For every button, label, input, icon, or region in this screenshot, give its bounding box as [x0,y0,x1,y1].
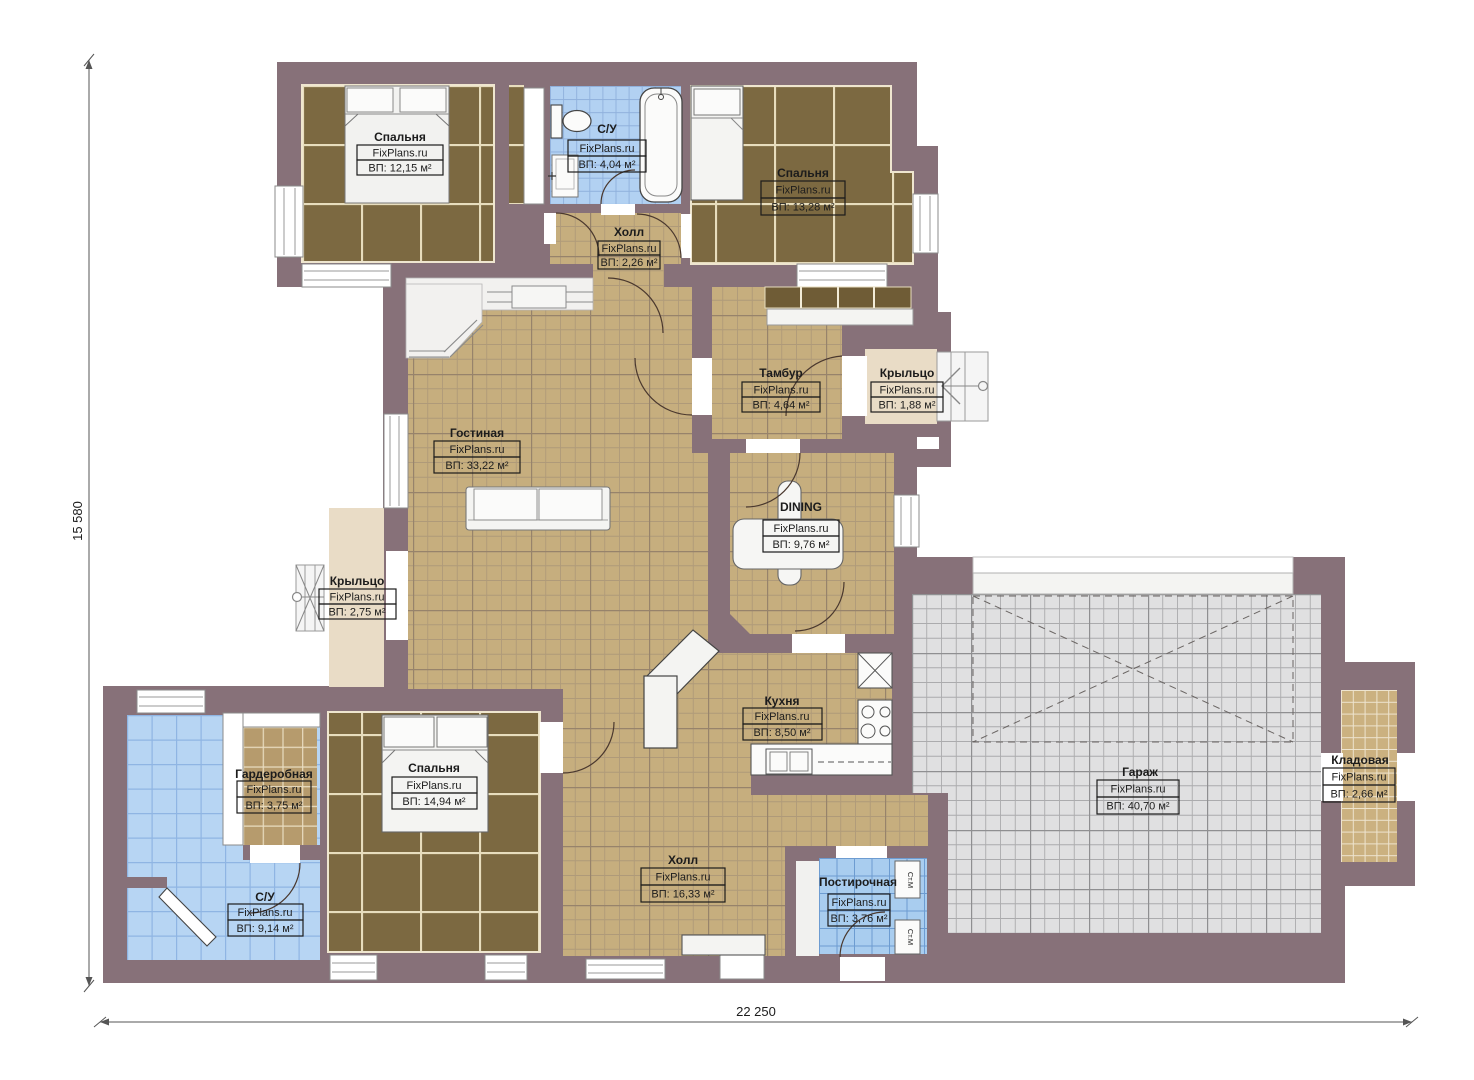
svg-text:FixPlans.ru: FixPlans.ru [831,897,886,909]
svg-text:FixPlans.ru: FixPlans.ru [237,907,292,919]
svg-text:Гостиная: Гостиная [450,426,504,440]
svg-text:ВП: 3,75 м²: ВП: 3,75 м² [245,800,302,812]
svg-text:ВП: 40,70 м²: ВП: 40,70 м² [1106,801,1170,813]
svg-text:FixPlans.ru: FixPlans.ru [601,243,656,255]
svg-text:ВП: 9,76 м²: ВП: 9,76 м² [772,539,829,551]
svg-text:Спальня: Спальня [374,130,426,144]
svg-text:Тамбур: Тамбур [759,366,803,380]
svg-text:ВП: 2,75 м²: ВП: 2,75 м² [328,607,385,619]
svg-text:FixPlans.ru: FixPlans.ru [329,592,384,604]
svg-text:Постирочная: Постирочная [819,875,897,889]
svg-text:ВП: 2,66 м²: ВП: 2,66 м² [1330,789,1387,801]
svg-text:ВП: 14,94 м²: ВП: 14,94 м² [402,796,466,808]
svg-text:Ст.М: Ст.М [906,929,915,945]
svg-text:DINING: DINING [780,500,822,514]
svg-text:FixPlans.ru: FixPlans.ru [655,872,710,884]
svg-text:FixPlans.ru: FixPlans.ru [753,385,808,397]
svg-text:ВП: 4,64 м²: ВП: 4,64 м² [752,400,809,412]
svg-text:Холл: Холл [614,225,644,239]
svg-text:FixPlans.ru: FixPlans.ru [406,780,461,792]
svg-text:Гардеробная: Гардеробная [235,767,313,781]
svg-text:ВП: 8,50 м²: ВП: 8,50 м² [753,727,810,739]
svg-text:Гараж: Гараж [1122,765,1158,779]
svg-text:FixPlans.ru: FixPlans.ru [1110,784,1165,796]
svg-text:ВП: 33,22 м²: ВП: 33,22 м² [445,460,509,472]
svg-text:Кладовая: Кладовая [1331,753,1388,767]
svg-text:ВП: 16,33 м²: ВП: 16,33 м² [651,889,715,901]
svg-text:FixPlans.ru: FixPlans.ru [754,711,809,723]
svg-text:ВП: 13,28 м²: ВП: 13,28 м² [771,202,835,214]
svg-text:FixPlans.ru: FixPlans.ru [773,523,828,535]
svg-text:Спальня: Спальня [777,166,829,180]
svg-text:ВП: 3,76 м²: ВП: 3,76 м² [830,913,887,925]
svg-text:FixPlans.ru: FixPlans.ru [449,444,504,456]
svg-text:Крыльцо: Крыльцо [330,574,385,588]
svg-text:FixPlans.ru: FixPlans.ru [775,185,830,197]
svg-text:FixPlans.ru: FixPlans.ru [879,385,934,397]
svg-text:FixPlans.ru: FixPlans.ru [1331,772,1386,784]
svg-text:Крыльцо: Крыльцо [880,366,935,380]
svg-text:FixPlans.ru: FixPlans.ru [579,143,634,155]
svg-text:ВП: 1,88 м²: ВП: 1,88 м² [878,400,935,412]
svg-text:С/У: С/У [597,122,617,136]
svg-text:Спальня: Спальня [408,761,460,775]
svg-text:15 580: 15 580 [70,501,85,541]
svg-text:ВП: 9,14 м²: ВП: 9,14 м² [236,923,293,935]
svg-text:ВП: 12,15 м²: ВП: 12,15 м² [368,163,432,175]
svg-text:Холл: Холл [668,853,698,867]
svg-text:FixPlans.ru: FixPlans.ru [372,148,427,160]
svg-text:ВП: 4,04 м²: ВП: 4,04 м² [578,159,635,171]
svg-text:ВП: 2,26 м²: ВП: 2,26 м² [600,257,657,269]
svg-text:FixPlans.ru: FixPlans.ru [246,784,301,796]
svg-text:22 250: 22 250 [736,1004,776,1019]
svg-text:Ст.М: Ст.М [906,872,915,888]
svg-text:С/У: С/У [255,890,275,904]
svg-text:Кухня: Кухня [764,694,799,708]
